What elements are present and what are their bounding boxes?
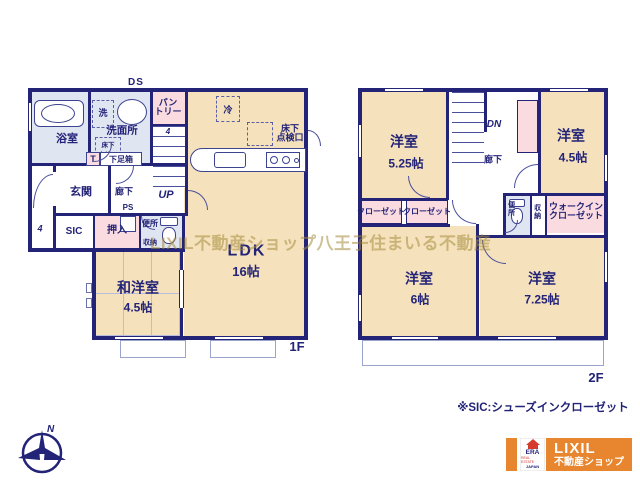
wall-1f-notch-left — [92, 248, 96, 340]
door-arc-1f-side — [308, 130, 321, 146]
era-country-label: JAPAN — [526, 465, 539, 470]
window-bedB-top — [550, 88, 588, 92]
wall-washitsu-ldk-lower — [180, 308, 183, 336]
wall-sic-row-top — [53, 213, 185, 216]
window-ldk-bottom — [215, 336, 263, 340]
label-ldk: LDK — [228, 244, 267, 261]
window-bedB-right — [604, 155, 608, 181]
floorplan-image: 洗 床下 点検口 冷 T 下足箱 DS 浴室 洗面所 パン — [0, 0, 640, 480]
label-floor-2f: 2F — [588, 371, 603, 385]
wall-sic-oshiire — [93, 213, 95, 248]
door-arc-entrance — [33, 174, 53, 208]
kitchen-sink-icon — [214, 152, 246, 168]
label-ldk-size: 16帖 — [232, 265, 259, 279]
label-dn: DN — [487, 120, 501, 131]
label-wic: ウォークイン クローゼット — [549, 203, 603, 222]
washbasin-icon — [117, 99, 147, 125]
label-closet-a: クローゼット — [357, 208, 405, 216]
stove-burners-icon — [270, 156, 299, 164]
label-up: UP — [158, 190, 173, 202]
label-bedroom-6-size: 6帖 — [411, 294, 430, 307]
window-bedD-bottom — [498, 336, 556, 340]
label-stair-count: 4 — [166, 128, 170, 136]
shoe-box-label: 下足箱 — [109, 154, 133, 165]
compass-north-label: N — [47, 424, 55, 435]
sic-note: ※SIC:シューズインクローゼット — [457, 402, 629, 414]
stairs-2f-down — [452, 92, 484, 172]
wall-bedC-top — [362, 224, 450, 227]
door-arc-bedroom-6 — [452, 200, 476, 224]
shutter-box-1 — [86, 283, 92, 293]
label-bedroom-525-size: 5.25帖 — [388, 158, 423, 171]
wall-1f-notch-bottom — [28, 248, 185, 252]
fridge-label: 冷 — [223, 103, 232, 116]
wall-1f-right — [304, 88, 308, 340]
label-bedroom-725-size: 7.25帖 — [524, 294, 559, 307]
label-toilet-1f: 便所 — [142, 220, 158, 228]
logo-orange-bar — [506, 438, 517, 471]
bathtub-inner-icon — [41, 104, 75, 123]
wall-pantry-bottom — [150, 124, 188, 126]
door-arc-washroom — [116, 166, 134, 184]
label-sic: SIC — [66, 227, 83, 238]
window-bedD-right — [604, 252, 608, 282]
wall-1f-top — [28, 88, 308, 92]
fridge-box: 冷 — [216, 96, 240, 122]
wall-2f-right — [604, 88, 608, 340]
era-logo: ERA REAL ESTATE JAPAN — [520, 438, 545, 471]
washer-label: 洗 — [98, 109, 107, 118]
label-ldk-hatch: 床下 点検口 — [276, 125, 303, 144]
label-bedroom-525: 洋室 — [390, 135, 418, 150]
lixil-logo: LIXIL 不動産ショップ — [546, 438, 632, 471]
wall-bedC-bedD — [476, 224, 479, 336]
balcony — [362, 340, 604, 366]
toilet-1f-bowl-icon — [162, 227, 176, 244]
wall-bedA-right — [446, 92, 449, 200]
label-ds: DS — [128, 78, 144, 89]
door-arc-bedroom-45 — [514, 164, 538, 188]
compass-icon: N — [12, 420, 72, 478]
wall-bedB-left — [538, 92, 541, 193]
window-bedC-left — [358, 295, 362, 321]
toilet-1f-tank-icon — [160, 217, 178, 226]
label-porch-step: 4 — [37, 224, 42, 233]
label-hallway-2f: 廊下 — [484, 155, 502, 164]
window-bedA-left — [358, 125, 362, 157]
label-toilet-2f: 便所 — [507, 201, 514, 217]
label-storage-1f: 収納 — [143, 239, 157, 246]
label-floor-1f: 1F — [289, 340, 304, 354]
lixil-brand-sub-label: 不動産ショップ — [554, 457, 632, 468]
label-oshiire: 押入 — [107, 226, 127, 237]
window-bedA-top — [385, 88, 423, 92]
label-bedroom-725: 洋室 — [528, 272, 556, 287]
label-ldk-hatch-line2: 点検口 — [276, 134, 303, 143]
label-pantry: パン トリー — [154, 99, 181, 118]
room-bedroom-45-closet — [517, 100, 538, 153]
label-hallway-1f: 廊下 — [115, 187, 133, 196]
label-storage-2f: 収納 — [533, 204, 540, 220]
label-washroom: 洗面所 — [106, 125, 138, 136]
label-closet-b: クローゼット — [403, 208, 451, 216]
window-bath-left — [28, 103, 32, 131]
terrace-step-2 — [210, 340, 276, 358]
lixil-brand-label: LIXIL — [554, 441, 632, 457]
terrace-step-1 — [120, 340, 186, 358]
label-bedroom-45: 洋室 — [557, 129, 585, 144]
window-washitsu-bottom — [115, 336, 163, 340]
label-entrance: 玄関 — [70, 187, 92, 199]
label-washitsu: 和洋室 — [117, 281, 159, 296]
label-bedroom-45-size: 4.5帖 — [559, 152, 588, 165]
wall-toiletrow-top — [503, 193, 604, 196]
label-wic-line2: クローゼット — [549, 212, 603, 221]
window-washitsu-ldk — [179, 270, 184, 308]
wall-toilet-right — [182, 213, 185, 248]
label-bathroom: 浴室 — [56, 134, 78, 146]
label-washitsu-size: 4.5帖 — [124, 302, 153, 315]
wall-genkan-hall — [108, 163, 111, 213]
wall-porch-upper — [53, 163, 56, 172]
wall-wash-pantry — [150, 92, 153, 163]
shutter-box-2 — [86, 298, 92, 308]
underfloor-hatch-ldk — [247, 122, 273, 146]
label-ps: PS — [123, 204, 134, 212]
window-bedC-bottom — [392, 336, 438, 340]
wall-bedA-bottom — [362, 198, 446, 201]
label-pantry-line2: トリー — [154, 108, 181, 117]
wall-wicrow-bottom — [478, 235, 604, 238]
label-bedroom-6: 洋室 — [405, 272, 433, 287]
wall-storage2-wic — [545, 193, 547, 235]
wall-washitsu-ldk-upper — [180, 252, 183, 270]
wall-toilet2-storage — [530, 196, 532, 235]
